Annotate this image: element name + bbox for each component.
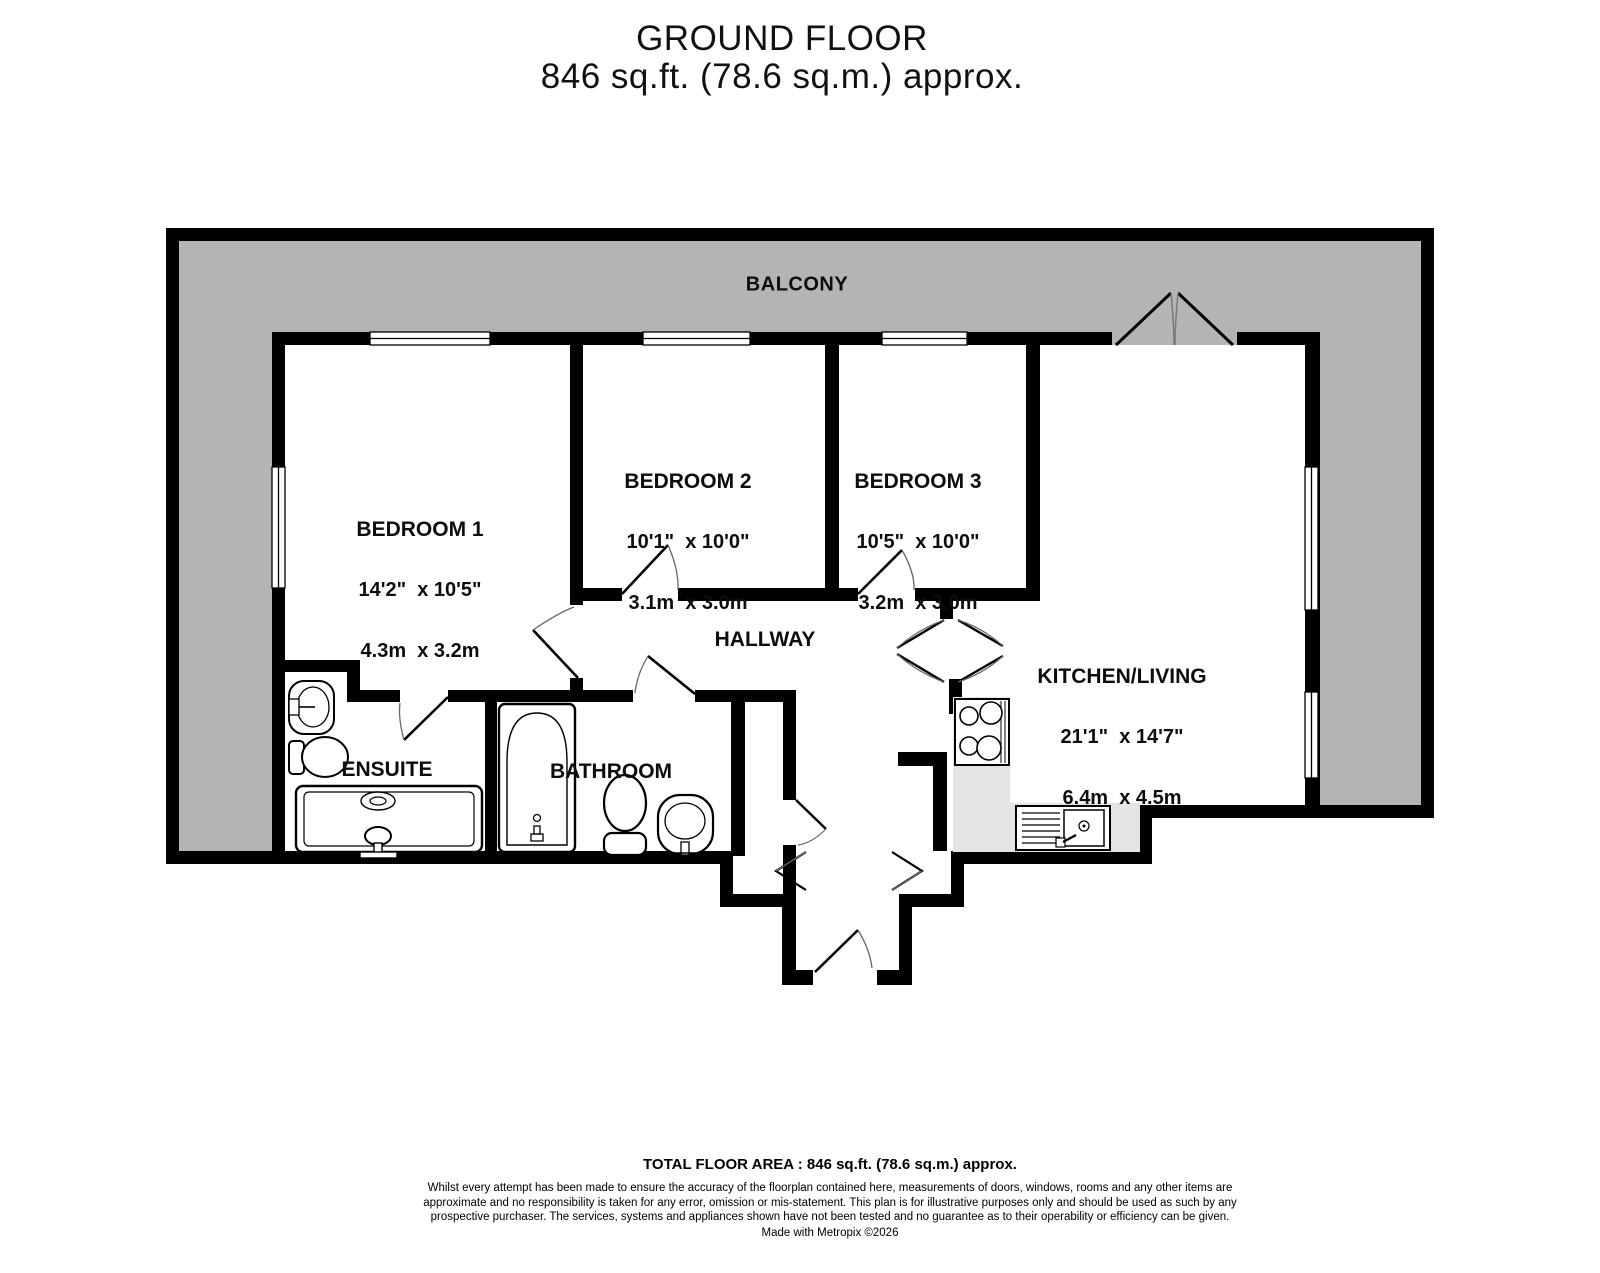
toilet-icon [289, 737, 348, 777]
room-dim-metric: 3.2m x 3.0m [854, 591, 981, 616]
room-label-bedroom-3: BEDROOM 3 10'5" x 10'0" 3.2m x 3.0m [854, 433, 981, 652]
room-label-hallway: HALLWAY [715, 628, 816, 652]
basin-icon [658, 795, 713, 855]
room-name: BEDROOM 3 [854, 469, 981, 494]
room-dim-imperial: 14'2" x 10'5" [356, 578, 483, 603]
metropix-credit: Made with Metropix ©2026 [400, 1227, 1260, 1239]
footer: TOTAL FLOOR AREA : 846 sq.ft. (78.6 sq.m… [400, 1156, 1260, 1239]
room-label-bathroom: BATHROOM [550, 760, 672, 784]
total-floor-area: TOTAL FLOOR AREA : 846 sq.ft. (78.6 sq.m… [400, 1156, 1260, 1173]
room-dim-metric: 4.3m x 3.2m [356, 639, 483, 664]
room-label-bedroom-2: BEDROOM 2 10'1" x 10'0" 3.1m x 3.0m [624, 433, 751, 652]
room-dim-imperial: 10'5" x 10'0" [854, 530, 981, 555]
room-label-kitchen-living: KITCHEN/LIVING 21'1" x 14'7" 6.4m x 4.5m [1037, 628, 1206, 847]
room-dim-metric: 3.1m x 3.0m [624, 591, 751, 616]
window-icon [1305, 467, 1318, 610]
room-label-bedroom-1: BEDROOM 1 14'2" x 10'5" 4.3m x 3.2m [356, 481, 483, 700]
window-icon [882, 332, 967, 345]
window-icon [272, 467, 285, 588]
window-icon [643, 332, 750, 345]
window-icon [370, 332, 490, 345]
floorplan-page: GROUND FLOOR 846 sq.ft. (78.6 sq.m.) app… [0, 0, 1600, 1273]
room-name: KITCHEN/LIVING [1037, 664, 1206, 689]
room-dim-imperial: 21'1" x 14'7" [1037, 725, 1206, 750]
room-dim-imperial: 10'1" x 10'0" [624, 530, 751, 555]
toilet-icon [604, 775, 646, 855]
shower-icon [296, 786, 482, 858]
hob-icon [955, 699, 1009, 765]
room-label-ensuite: ENSUITE [341, 758, 432, 782]
basin-icon [289, 681, 334, 734]
disclaimer-text: Whilst every attempt has been made to en… [400, 1181, 1260, 1225]
balcony-label: BALCONY [746, 274, 848, 297]
room-name: BEDROOM 2 [624, 469, 751, 494]
window-icon [1305, 692, 1318, 778]
room-dim-metric: 6.4m x 4.5m [1037, 786, 1206, 811]
room-name: BEDROOM 1 [356, 517, 483, 542]
